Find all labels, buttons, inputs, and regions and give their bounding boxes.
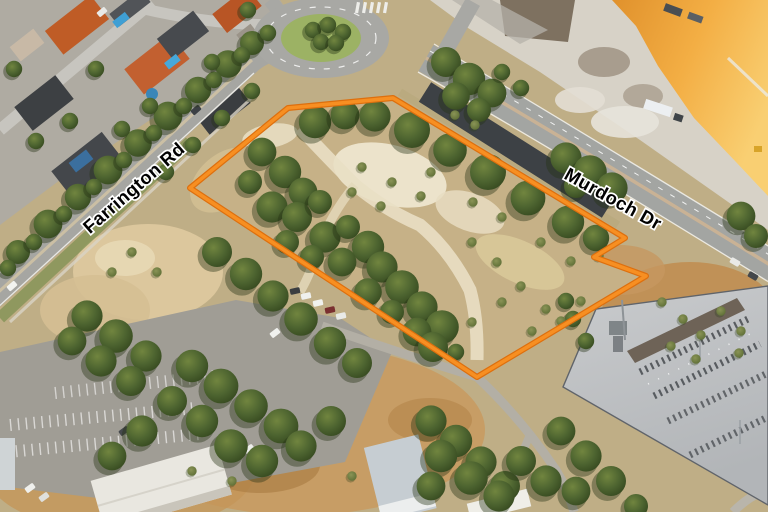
aerial-photo-viewport: Farrington Rd Murdoch Dr [0,0,768,512]
